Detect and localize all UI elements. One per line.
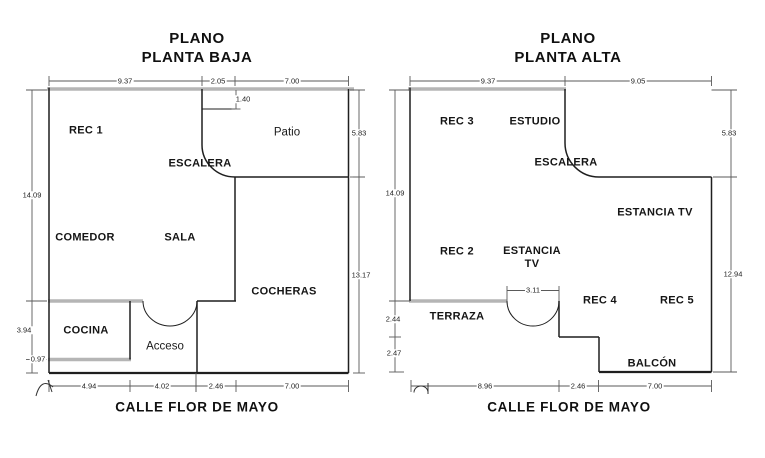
plan-title-line1: PLANO xyxy=(514,29,621,48)
dim-top-1: 9.37 xyxy=(117,77,134,85)
plan-title-line2: PLANTA BAJA xyxy=(142,48,253,67)
dim-closet: 1.40 xyxy=(235,95,252,103)
dim-bottom-2: 4.02 xyxy=(154,382,171,390)
dim-top-3: 7.00 xyxy=(284,77,301,85)
dim-bottom-4: 7.00 xyxy=(284,382,301,390)
dim-left-3: 0.97 xyxy=(30,355,47,363)
dim-bottom-2: 2.46 xyxy=(570,382,587,390)
dim-bottom-3: 7.00 xyxy=(647,382,664,390)
room-label-estudio: ESTUDIO xyxy=(510,117,561,128)
plan-title-line2: PLANTA ALTA xyxy=(514,48,621,67)
room-label-estancia-tv: ESTANCIA TV xyxy=(617,208,692,219)
dim-top-2: 9.05 xyxy=(630,77,647,85)
dim-left-1: 14.09 xyxy=(22,191,43,199)
room-label-terraza: TERRAZA xyxy=(430,312,485,323)
dim-right-2: 13.17 xyxy=(351,271,372,279)
dim-left-3: 2.47 xyxy=(386,349,403,357)
dim-left-2: 3.94 xyxy=(16,326,33,334)
plan-title-planta-baja: PLANO PLANTA BAJA xyxy=(142,29,253,67)
dim-right-1: 5.83 xyxy=(351,129,368,137)
room-label-rec2: REC 2 xyxy=(440,247,474,258)
room-label-rec1: REC 1 xyxy=(69,126,103,137)
room-label-cocina: COCINA xyxy=(63,326,108,337)
room-label-rec4: REC 4 xyxy=(583,296,617,307)
floor-plan-sheet: PLANO PLANTA BAJA REC 1 Patio ESCALERA C… xyxy=(0,0,765,458)
plan-title-planta-alta: PLANO PLANTA ALTA xyxy=(514,29,621,67)
dim-left-1: 14.09 xyxy=(385,189,406,197)
room-label-acceso: Acceso xyxy=(146,341,184,353)
dim-bottom-1: 8.96 xyxy=(477,382,494,390)
plan-title-line1: PLANO xyxy=(142,29,253,48)
street-label-planta-alta: CALLE FLOR DE MAYO xyxy=(487,400,651,414)
dim-right-2: 12.94 xyxy=(723,270,744,278)
room-label-escalera-alta: ESCALERA xyxy=(535,158,598,169)
dim-left-2: 2.44 xyxy=(385,315,402,323)
room-label-estancia-2: ESTANCIA TV xyxy=(503,245,561,271)
room-label-sala: SALA xyxy=(164,233,195,244)
room-label-escalera: ESCALERA xyxy=(169,159,232,170)
planta-baja-access-arrow xyxy=(36,380,53,396)
street-label-planta-baja: CALLE FLOR DE MAYO xyxy=(115,400,279,414)
planta-alta-walls xyxy=(410,88,712,373)
room-label-balcon: BALCÓN xyxy=(628,359,677,370)
planta-alta-access-arrow xyxy=(414,383,428,394)
room-label-cocheras: COCHERAS xyxy=(251,287,316,298)
dim-bottom-1: 4.94 xyxy=(81,382,98,390)
room-label-rec3: REC 3 xyxy=(440,117,474,128)
dim-right-1: 5.83 xyxy=(721,129,738,137)
dim-top-1: 9.37 xyxy=(480,77,497,85)
room-label-estancia-line1: ESTANCIA xyxy=(503,245,561,258)
room-label-patio: Patio xyxy=(274,127,300,139)
dim-top-2: 2.05 xyxy=(210,77,227,85)
room-label-rec5: REC 5 xyxy=(660,296,694,307)
room-label-estancia-line2: TV xyxy=(503,258,561,271)
dim-bottom-3: 2.46 xyxy=(208,382,225,390)
room-label-comedor: COMEDOR xyxy=(55,233,115,244)
dim-door: 3.11 xyxy=(525,286,541,294)
